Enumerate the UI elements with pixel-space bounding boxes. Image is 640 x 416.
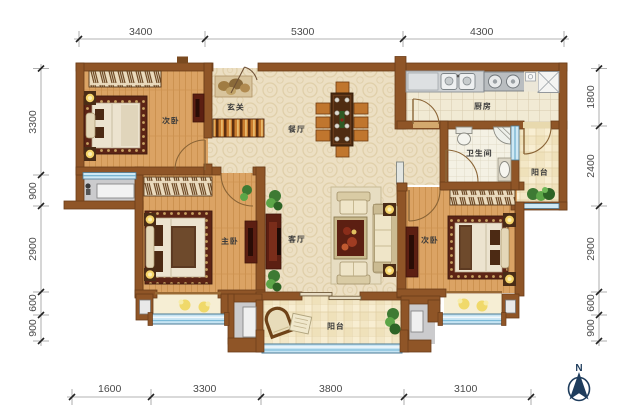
svg-text:600: 600 [585, 294, 597, 312]
svg-text:2900: 2900 [585, 237, 597, 261]
svg-text:2900: 2900 [27, 237, 39, 261]
svg-text:600: 600 [27, 294, 39, 312]
svg-text:3300: 3300 [27, 110, 39, 134]
svg-text:3300: 3300 [193, 383, 217, 395]
svg-text:3800: 3800 [319, 383, 343, 395]
svg-text:3100: 3100 [454, 383, 478, 395]
svg-text:N: N [575, 363, 582, 374]
svg-text:900: 900 [27, 182, 39, 200]
svg-text:5300: 5300 [291, 26, 315, 38]
svg-text:1800: 1800 [585, 85, 597, 109]
svg-text:4300: 4300 [470, 26, 494, 38]
svg-text:900: 900 [585, 319, 597, 337]
svg-text:3400: 3400 [129, 26, 153, 38]
svg-text:2400: 2400 [585, 154, 597, 178]
svg-text:1600: 1600 [98, 383, 122, 395]
svg-text:900: 900 [27, 319, 39, 337]
